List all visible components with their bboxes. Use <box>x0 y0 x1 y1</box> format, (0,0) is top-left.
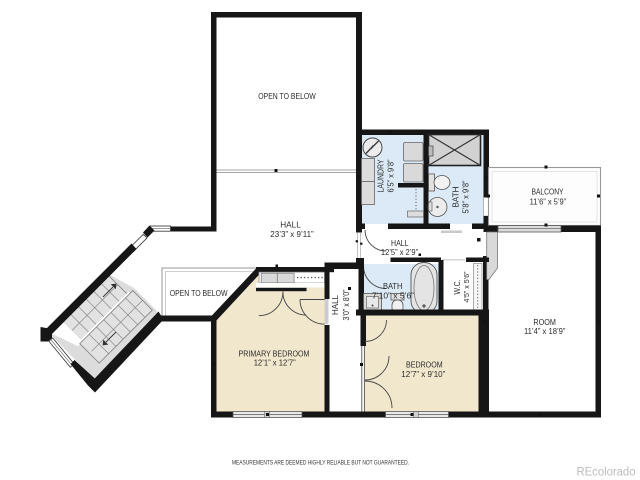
svg-text:6’5” x 9’8”: 6’5” x 9’8” <box>387 159 396 192</box>
svg-text:OPEN TO BELOW: OPEN TO BELOW <box>170 288 229 298</box>
svg-text:HALL: HALL <box>280 220 301 230</box>
svg-text:OPEN TO BELOW: OPEN TO BELOW <box>258 91 316 101</box>
svg-text:BATH: BATH <box>452 186 461 207</box>
svg-text:23’3” x 9’11”: 23’3” x 9’11” <box>270 229 314 239</box>
svg-text:MEASUREMENTS ARE DEEMED HIGHLY: MEASUREMENTS ARE DEEMED HIGHLY RELIABLE … <box>232 460 409 467</box>
svg-text:5’8” x 9’8”: 5’8” x 9’8” <box>462 180 471 213</box>
svg-text:REcolorado: REcolorado <box>577 467 636 479</box>
svg-text:4’5” x 5’6”: 4’5” x 5’6” <box>462 271 471 302</box>
svg-text:LAUNDRY: LAUNDRY <box>377 159 386 192</box>
svg-text:BALCONY: BALCONY <box>532 187 564 197</box>
svg-text:12’5” x 2’9”: 12’5” x 2’9” <box>381 247 418 257</box>
svg-text:BATH: BATH <box>383 281 403 291</box>
svg-text:HALL: HALL <box>331 295 340 315</box>
svg-text:12’7” x 9’10”: 12’7” x 9’10” <box>401 369 445 379</box>
svg-text:W.C.: W.C. <box>453 280 462 295</box>
svg-text:3’0” x 8’0”: 3’0” x 8’0” <box>342 289 351 320</box>
svg-text:11’6” x 5’9”: 11’6” x 5’9” <box>530 197 567 207</box>
svg-text:12’1” x 12’7”: 12’1” x 12’7” <box>254 357 296 367</box>
svg-text:7’10” x 5’6”: 7’10” x 5’6” <box>372 291 414 301</box>
svg-text:11’4” x 18’9”: 11’4” x 18’9” <box>524 326 566 336</box>
